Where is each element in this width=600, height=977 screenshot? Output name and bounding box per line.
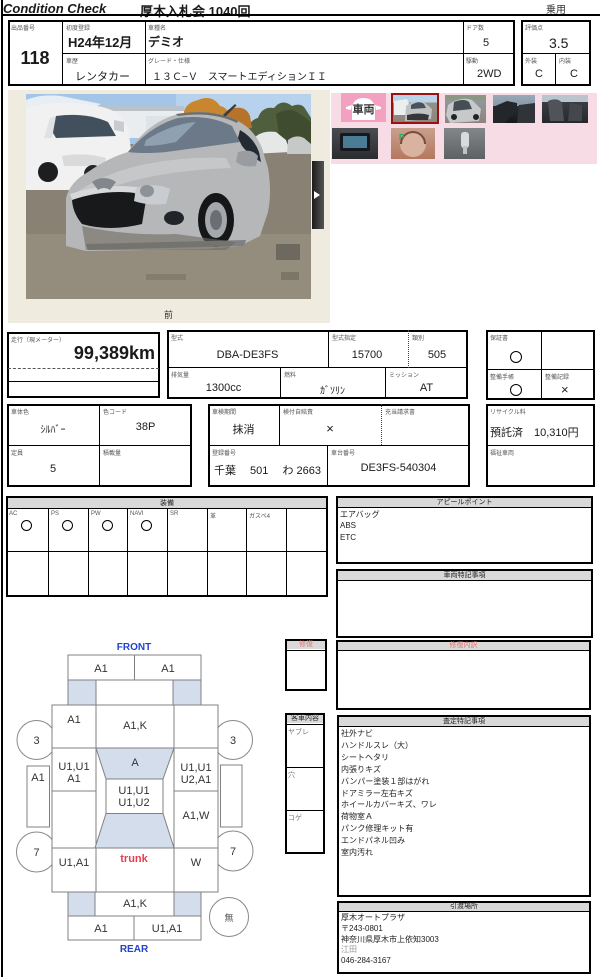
svg-text:A1: A1: [31, 772, 44, 784]
svg-text:A1: A1: [94, 663, 107, 675]
svg-text:7: 7: [33, 847, 39, 859]
svg-text:3: 3: [33, 735, 39, 747]
svg-text:A1,K: A1,K: [123, 720, 148, 732]
svg-text:U1,A1: U1,A1: [59, 857, 90, 869]
svg-text:3: 3: [230, 735, 236, 747]
svg-text:U1,U2: U1,U2: [118, 797, 149, 809]
svg-text:U1,U1: U1,U1: [58, 761, 89, 773]
svg-text:W: W: [191, 857, 202, 869]
svg-text:無: 無: [224, 912, 233, 923]
svg-text:FRONT: FRONT: [117, 642, 151, 653]
svg-text:U2,A1: U2,A1: [181, 774, 212, 786]
svg-text:A1: A1: [161, 663, 174, 675]
svg-text:A: A: [131, 757, 139, 769]
svg-text:U1,U1: U1,U1: [180, 762, 211, 774]
svg-text:P: P: [399, 133, 405, 142]
svg-text:U1,A1: U1,A1: [152, 923, 183, 935]
svg-text:REAR: REAR: [120, 944, 149, 955]
svg-text:A1: A1: [94, 923, 107, 935]
svg-text:U1,U1: U1,U1: [118, 785, 149, 797]
svg-text:A1: A1: [67, 714, 80, 726]
svg-text:車両: 車両: [353, 102, 375, 116]
svg-text:trunk: trunk: [120, 853, 148, 865]
svg-text:A1: A1: [67, 773, 80, 785]
svg-text:A1,K: A1,K: [123, 898, 148, 910]
svg-text:A1,W: A1,W: [183, 810, 211, 822]
svg-text:7: 7: [230, 846, 236, 858]
